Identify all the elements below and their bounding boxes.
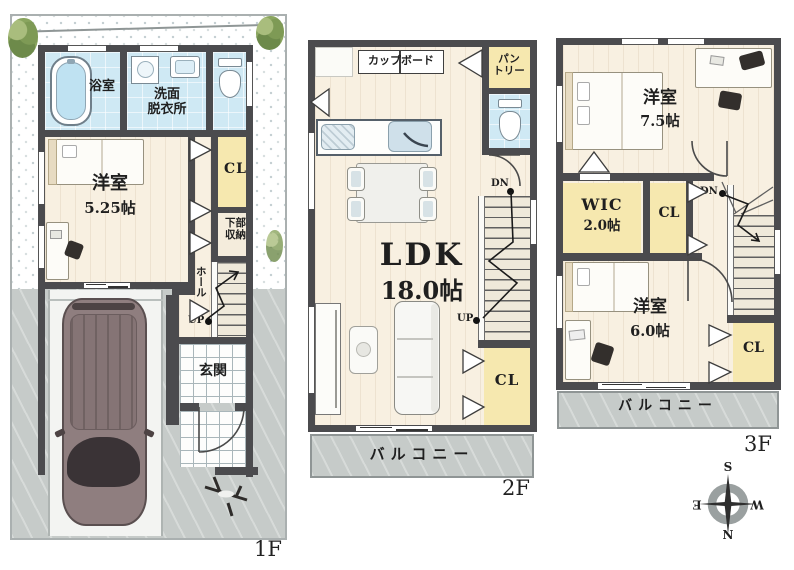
wall: [45, 130, 246, 137]
dining-chair-icon: [419, 167, 437, 191]
sliding-door-tick: [108, 286, 128, 288]
pillow-icon: [577, 82, 590, 101]
window-marker: [556, 86, 563, 142]
wall: [211, 137, 218, 262]
wall: [215, 467, 258, 475]
wall: [482, 94, 489, 148]
wall: [774, 38, 781, 390]
wall: [172, 282, 195, 295]
chair-seat: [351, 201, 361, 217]
pantry-label: パン トリー: [488, 54, 530, 78]
room-label-ldk-size: 18.0帖: [312, 278, 532, 305]
room-label-closet-3f-lower: CL: [733, 341, 774, 357]
room-label-bath: 浴室: [84, 80, 120, 95]
window-marker: [774, 230, 781, 274]
room-label-wic: WIC: [563, 196, 641, 214]
stair-landing-dot: [473, 317, 480, 324]
door-gap: [580, 174, 610, 180]
tv-icon: [335, 310, 337, 408]
sink-basin: [175, 60, 195, 74]
stair-landing-dot: [719, 190, 726, 197]
wall: [211, 207, 253, 213]
wall: [235, 403, 253, 411]
window-marker: [246, 62, 253, 106]
wall: [180, 403, 199, 411]
sofa-cushion-line: [397, 376, 433, 378]
room-label-bedroom-1f: 洋室: [49, 174, 171, 194]
stair-rail: [727, 185, 734, 315]
porch-floor: [180, 411, 247, 467]
room-label-under-storage: 下部 収納: [218, 218, 253, 242]
compass-north-label: N: [714, 529, 742, 542]
sofa-cushion-line: [397, 338, 433, 340]
desk-item: [50, 230, 62, 239]
cupboard-label: カップボード: [358, 55, 444, 67]
room-label-closet-1f: CL: [218, 162, 253, 178]
kitchen-stove-icon: [388, 121, 432, 152]
car-icon: [62, 298, 147, 526]
floor-label-1f: 1F: [254, 537, 282, 561]
floor-label-3f: 3F: [744, 432, 772, 456]
window-marker: [308, 133, 315, 209]
pillow-icon: [577, 106, 590, 125]
sliding-door-tick: [360, 427, 392, 429]
pantry-line2: トリー: [488, 66, 530, 78]
room-label-hall: ホール: [194, 266, 206, 298]
pantry-line1: パン: [488, 54, 530, 66]
room-label-closet-2f: CL: [484, 372, 530, 389]
sliding-door-tick: [646, 387, 686, 389]
dining-chair-icon: [419, 197, 437, 221]
washroom-line2: 脱衣所: [128, 103, 206, 118]
wall: [482, 88, 537, 94]
desk-item: [569, 329, 586, 341]
stairs-up-label-2f: UP: [457, 313, 473, 324]
stair-landing-dot: [205, 318, 212, 325]
under-storage-line1: 下部: [218, 218, 253, 230]
chair-seat: [423, 201, 433, 217]
pillow-icon: [62, 145, 77, 158]
wall: [211, 256, 253, 262]
wall: [206, 52, 213, 130]
floor-label-2f: 2F: [502, 476, 530, 500]
room-label-bedroom-1f-size: 5.25帖: [49, 200, 171, 217]
compass-south-label: S: [714, 461, 742, 474]
pillow-icon: [577, 268, 590, 286]
sofa-back: [431, 304, 438, 412]
window-marker: [38, 226, 45, 268]
dining-chair-icon: [347, 197, 365, 221]
window-marker: [556, 276, 563, 328]
side-table-top: [356, 342, 371, 357]
toilet-icon: [498, 99, 522, 108]
wall: [727, 315, 774, 323]
sliding-door-tick: [396, 429, 428, 431]
stairs-down-label-3f: DN: [700, 186, 718, 197]
sliding-door-tick: [602, 384, 642, 386]
faucet-icon: [67, 59, 75, 64]
window-marker: [140, 45, 178, 52]
tv-board-icon: [315, 303, 341, 415]
staircase-3f: [734, 215, 774, 315]
chair-icon: [718, 90, 743, 111]
car-roof: [70, 314, 137, 430]
room-label-bedroom-75-size: 7.5帖: [600, 114, 720, 130]
stairs-down-label-2f: DN: [491, 178, 509, 189]
balcony-label-3f: バルコニー: [557, 399, 779, 415]
room-label-washroom: 洗面 脱衣所: [128, 88, 206, 117]
compass-west-label: W: [749, 497, 765, 510]
bathtub-water: [56, 62, 86, 120]
stair-landing-dot: [507, 188, 514, 195]
compass-east-label: E: [689, 497, 705, 510]
toilet-icon: [218, 58, 242, 67]
stair-rail: [211, 262, 218, 343]
bed-headboard: [565, 72, 573, 150]
bed-fold-line: [621, 73, 623, 149]
wall: [166, 295, 179, 425]
under-storage-line2: 収納: [218, 230, 253, 242]
staircase-1f: [218, 262, 246, 343]
room-label-bedroom-75: 洋室: [600, 89, 720, 108]
window-marker: [68, 45, 106, 52]
wall: [482, 148, 537, 155]
desk-item: [709, 55, 724, 66]
chair-seat: [423, 171, 433, 187]
wall: [173, 337, 253, 344]
kitchen-sink-icon: [321, 124, 355, 150]
wall: [120, 52, 127, 130]
fridge-space: [315, 47, 353, 77]
bed-headboard: [565, 262, 573, 312]
dining-chair-icon: [347, 167, 365, 191]
room-label-bedroom-60-size: 6.0帖: [590, 324, 710, 340]
wall: [643, 181, 650, 253]
car-windshield: [67, 437, 140, 487]
wall: [478, 340, 537, 348]
washroom-line1: 洗面: [128, 88, 206, 103]
dining-table-icon: [356, 163, 428, 223]
room-label-ldk: LDK: [312, 238, 532, 273]
window-marker: [668, 38, 704, 45]
sliding-door-tick: [86, 284, 106, 286]
floor-plan: 浴室 洗面 脱衣所 洋室 5.25帖 CL 下部 収納 ホール UP 玄関 1F: [0, 0, 794, 570]
window-marker: [622, 38, 658, 45]
car-rear-window: [72, 303, 135, 310]
room-label-wic-size: 2.0帖: [563, 219, 641, 234]
wall: [556, 253, 702, 261]
stairs-up-label-1f: UP: [188, 315, 204, 326]
washing-machine-drum: [137, 61, 154, 78]
window-marker: [38, 152, 45, 204]
room-label-bedroom-60: 洋室: [590, 298, 710, 317]
wall: [308, 40, 537, 47]
room-label-entrance: 玄関: [180, 364, 246, 380]
chair-seat: [351, 171, 361, 187]
balcony-label-2f: バルコニー: [310, 446, 534, 463]
room-label-closet-3f-upper: CL: [650, 206, 688, 222]
window-marker: [308, 307, 315, 393]
